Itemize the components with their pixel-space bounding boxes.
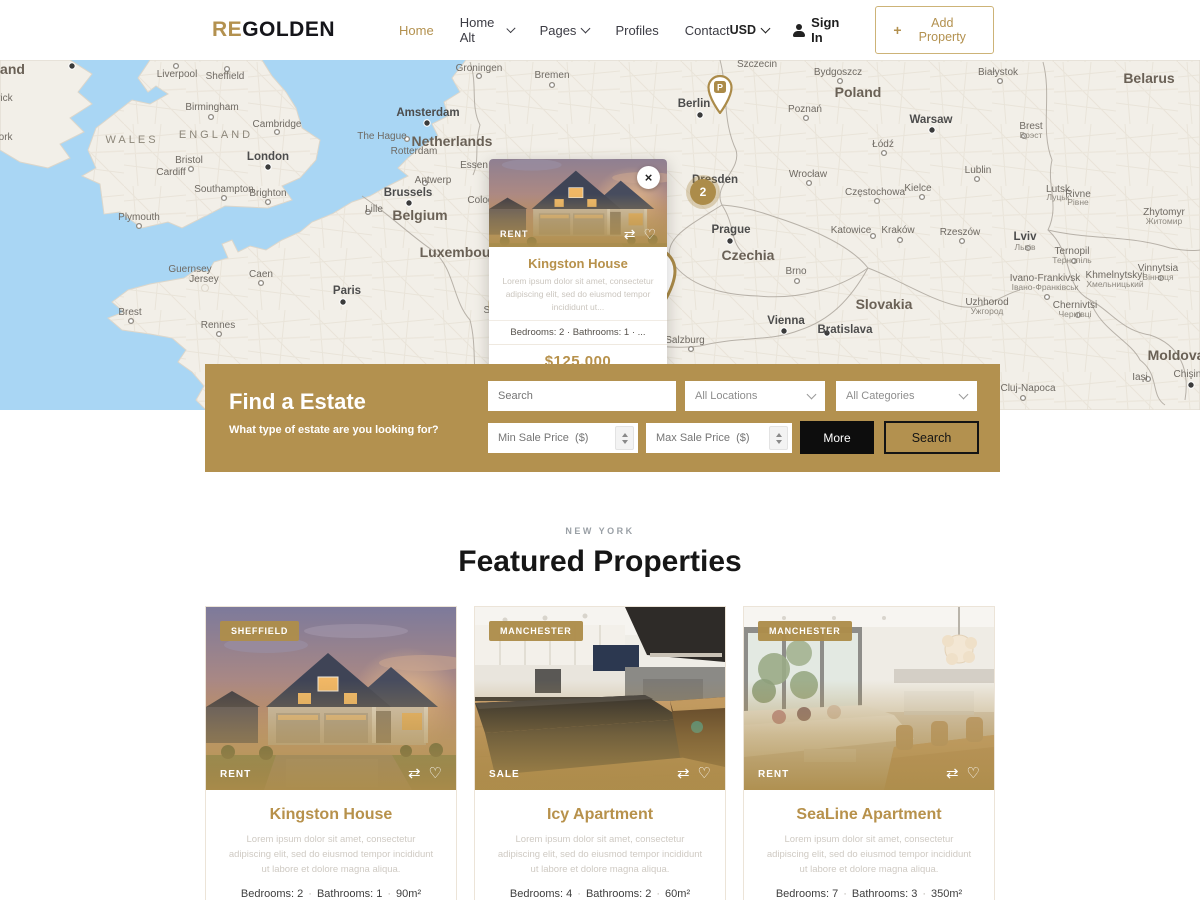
svg-text:Plymouth: Plymouth	[118, 212, 160, 223]
svg-text:Брэст: Брэст	[1020, 130, 1043, 140]
search-field-wrap	[488, 381, 676, 411]
panel-title: Find a Estate	[229, 389, 439, 415]
min-price-input[interactable]	[488, 423, 615, 453]
svg-text:Bristol: Bristol	[175, 155, 203, 166]
compare-icon[interactable]: ⇄	[408, 767, 421, 781]
heart-icon[interactable]: ♡	[643, 227, 656, 241]
chevron-down-icon	[761, 24, 771, 34]
svg-text:Amsterdam: Amsterdam	[396, 107, 459, 119]
section-title: Featured Properties	[0, 545, 1200, 579]
compare-icon[interactable]: ⇄	[677, 767, 690, 781]
property-cards-row: SHEFFIELD RENT ⇄ ♡ Kingston House Lorem …	[0, 606, 1200, 900]
categories-select[interactable]: All Categories	[836, 381, 977, 411]
svg-text:Kielce: Kielce	[904, 183, 932, 194]
property-stats: Bedrooms: 4·Bathrooms: 2·60m²	[475, 888, 725, 900]
section-kicker: NEW YORK	[0, 526, 1200, 536]
compare-icon[interactable]: ⇄	[624, 227, 636, 241]
nav-item-profiles[interactable]: Profiles	[615, 23, 658, 38]
heart-icon[interactable]: ♡	[698, 767, 711, 781]
svg-text:Sheffield: Sheffield	[206, 71, 245, 82]
svg-text:Brest: Brest	[118, 307, 142, 318]
property-image[interactable]: MANCHESTER RENT ⇄ ♡	[744, 607, 994, 790]
svg-text:London: London	[247, 151, 289, 163]
more-filters-button[interactable]: More	[800, 421, 874, 454]
panel-subtitle: What type of estate are you looking for?	[229, 424, 439, 436]
svg-text:Cardiff: Cardiff	[156, 167, 185, 178]
svg-text:Bremen: Bremen	[534, 70, 569, 81]
map-cluster-badge[interactable]: 2	[690, 179, 716, 205]
svg-text:Луцьк: Луцьк	[1047, 192, 1070, 202]
svg-text:Liverpool: Liverpool	[157, 69, 198, 80]
svg-text:Cambridge: Cambridge	[253, 119, 302, 130]
rent-tag: RENT	[500, 229, 529, 239]
svg-text:Lille: Lille	[365, 204, 383, 215]
map-property-popup: RENT ⇄ ♡ × Kingston House Lorem ipsum do…	[489, 159, 667, 379]
svg-text:Brighton: Brighton	[249, 188, 286, 199]
property-description: Lorem ipsum dolor sit amet, consectetur …	[475, 824, 725, 878]
svg-text:Вінниця: Вінниця	[1142, 272, 1174, 282]
min-price-field-wrap	[488, 423, 638, 453]
svg-text:Івано-Франківськ: Івано-Франківськ	[1012, 282, 1079, 292]
top-navbar: REGOLDEN Home Home Alt Pages Profiles Co…	[0, 0, 1200, 60]
rent-tag: RENT	[220, 769, 251, 780]
location-badge: MANCHESTER	[758, 621, 852, 641]
main-nav: Home Home Alt Pages Profiles Contact	[399, 15, 730, 45]
svg-text:Belarus: Belarus	[1123, 70, 1175, 86]
property-title[interactable]: Icy Apartment	[475, 806, 725, 824]
currency-selector[interactable]: USD	[730, 23, 769, 37]
svg-text:Ireland: Ireland	[0, 61, 25, 77]
map-pin-parking[interactable]: P	[705, 72, 735, 114]
svg-text:Житомир: Житомир	[1146, 216, 1183, 226]
svg-text:Wrocław: Wrocław	[789, 169, 828, 180]
location-badge: SHEFFIELD	[220, 621, 299, 641]
svg-text:Essen: Essen	[460, 160, 488, 171]
map-section: IrelandNetherlandsBelgiumPolandBelarusCz…	[0, 60, 1200, 410]
nav-item-home[interactable]: Home	[399, 23, 434, 38]
logo-part-gold: RE	[212, 18, 242, 41]
card-tag-row: RENT ⇄ ♡	[758, 767, 980, 781]
svg-text:Moldova: Moldova	[1148, 347, 1200, 363]
nav-item-home-alt[interactable]: Home Alt	[460, 15, 514, 45]
svg-text:Poznań: Poznań	[788, 104, 822, 115]
property-title[interactable]: Kingston House	[206, 806, 456, 824]
heart-icon[interactable]: ♡	[967, 767, 980, 781]
svg-text:Caen: Caen	[249, 269, 273, 280]
logo-part-dark: GOLDEN	[242, 18, 335, 41]
svg-text:Groningen: Groningen	[456, 63, 503, 74]
svg-text:The Hague: The Hague	[357, 131, 407, 142]
svg-text:Paris: Paris	[333, 285, 361, 297]
popup-property-stats: Bedrooms: 2 · Bathrooms: 1 · ...	[489, 320, 667, 344]
compare-icon[interactable]: ⇄	[946, 767, 959, 781]
rent-tag: RENT	[758, 769, 789, 780]
svg-text:Katowice: Katowice	[831, 225, 872, 236]
close-icon[interactable]: ×	[637, 166, 660, 189]
panel-heading: Find a Estate What type of estate are yo…	[229, 389, 439, 436]
parking-icon: P	[717, 83, 723, 93]
location-badge: MANCHESTER	[489, 621, 583, 641]
featured-section: NEW YORK Featured Properties SHEFFIELD R…	[0, 410, 1200, 900]
card-tag-row: SALE ⇄ ♡	[489, 767, 711, 781]
svg-text:Białystok: Białystok	[978, 67, 1019, 78]
user-icon	[793, 24, 804, 37]
svg-text:Brno: Brno	[785, 266, 807, 277]
popup-property-title[interactable]: Kingston House	[489, 247, 667, 271]
search-button[interactable]: Search	[884, 421, 979, 454]
svg-text:Birmingham: Birmingham	[185, 102, 238, 113]
svg-text:Чернівці: Чернівці	[1059, 309, 1092, 319]
svg-text:Cluj-Napoca: Cluj-Napoca	[1000, 383, 1055, 394]
card-tag-row: RENT ⇄ ♡	[220, 767, 442, 781]
sale-tag: SALE	[489, 769, 520, 780]
chevron-down-icon	[506, 24, 515, 33]
svg-text:Belgium: Belgium	[392, 207, 447, 223]
svg-text:Хмельницький: Хмельницький	[1086, 279, 1144, 289]
svg-text:Częstochowa: Częstochowa	[845, 187, 905, 198]
property-description: Lorem ipsum dolor sit amet, consectetur …	[206, 824, 456, 878]
search-input[interactable]	[488, 381, 676, 411]
svg-text:Czechia: Czechia	[722, 247, 775, 263]
popup-tag-row: RENT ⇄ ♡	[500, 227, 656, 241]
chevron-down-icon	[807, 389, 817, 399]
svg-text:Prague: Prague	[712, 224, 751, 236]
svg-text:Chişinău: Chişinău	[1174, 369, 1200, 380]
svg-text:Тернопіль: Тернопіль	[1052, 255, 1092, 265]
property-card: MANCHESTER SALE ⇄ ♡ Icy Apartment Lorem …	[474, 606, 726, 900]
property-description: Lorem ipsum dolor sit amet, consectetur …	[744, 824, 994, 878]
chevron-down-icon	[959, 389, 969, 399]
plus-icon: +	[893, 25, 901, 35]
header-right: USD Sign In +Add Property	[730, 6, 994, 54]
sign-in-button[interactable]: Sign In	[793, 15, 851, 45]
svg-text:Jersey: Jersey	[189, 274, 218, 285]
svg-text:Szczecin: Szczecin	[737, 60, 777, 70]
svg-text:Southampton: Southampton	[194, 184, 254, 195]
svg-text:Cork: Cork	[0, 132, 14, 143]
nav-item-contact[interactable]: Contact	[685, 23, 730, 38]
svg-text:Antwerp: Antwerp	[415, 175, 452, 186]
property-card: SHEFFIELD RENT ⇄ ♡ Kingston House Lorem …	[205, 606, 457, 900]
property-image[interactable]: SHEFFIELD RENT ⇄ ♡	[206, 607, 456, 790]
property-image[interactable]: MANCHESTER SALE ⇄ ♡	[475, 607, 725, 790]
svg-text:Rennes: Rennes	[201, 320, 235, 331]
svg-text:Łódź: Łódź	[872, 139, 894, 150]
svg-text:Warsaw: Warsaw	[909, 114, 952, 126]
svg-text:Slovakia: Slovakia	[856, 296, 913, 312]
svg-text:Львів: Львів	[1015, 242, 1036, 252]
svg-text:Lublin: Lublin	[965, 165, 992, 176]
svg-text:Bratislava: Bratislava	[818, 324, 874, 336]
property-card: MANCHESTER RENT ⇄ ♡ SeaLine Apartment Lo…	[743, 606, 995, 900]
number-stepper-icon[interactable]	[769, 426, 788, 450]
svg-text:Iaşi: Iaşi	[1132, 372, 1148, 383]
locations-select[interactable]: All Locations	[685, 381, 825, 411]
svg-text:Salzburg: Salzburg	[665, 335, 704, 346]
property-stats: Bedrooms: 7·Bathrooms: 3·350m²	[744, 888, 994, 900]
regolden-homepage: REGOLDEN Home Home Alt Pages Profiles Co…	[0, 0, 1200, 900]
svg-text:Vienna: Vienna	[767, 315, 805, 327]
property-title[interactable]: SeaLine Apartment	[744, 806, 994, 824]
svg-text:Poland: Poland	[835, 84, 882, 100]
max-price-input[interactable]	[646, 423, 769, 453]
svg-text:Рівне: Рівне	[1067, 197, 1089, 207]
popup-property-description: Lorem ipsum dolor sit amet, consectetur …	[489, 271, 667, 320]
svg-text:Bydgoszcz: Bydgoszcz	[814, 67, 862, 78]
svg-text:Rotterdam: Rotterdam	[391, 146, 438, 157]
popup-property-image[interactable]: RENT ⇄ ♡ ×	[489, 159, 667, 247]
find-estate-panel: Find a Estate What type of estate are yo…	[205, 364, 1000, 472]
nav-item-pages[interactable]: Pages	[540, 23, 590, 38]
svg-text:Limerick: Limerick	[0, 93, 14, 104]
site-logo[interactable]: REGOLDEN	[212, 18, 335, 42]
add-property-button[interactable]: +Add Property	[875, 6, 994, 54]
heart-icon[interactable]: ♡	[429, 767, 442, 781]
svg-text:Kraków: Kraków	[881, 225, 915, 236]
property-stats: Bedrooms: 2·Bathrooms: 1·90m²	[206, 888, 456, 900]
chevron-down-icon	[581, 24, 591, 34]
svg-text:Ужгород: Ужгород	[971, 306, 1004, 316]
svg-text:Rzeszów: Rzeszów	[940, 227, 981, 238]
svg-text:Brussels: Brussels	[384, 187, 433, 199]
svg-text:ENGLAND: ENGLAND	[179, 129, 253, 141]
max-price-field-wrap	[646, 423, 792, 453]
svg-text:WALES: WALES	[105, 134, 158, 146]
number-stepper-icon[interactable]	[615, 426, 634, 450]
